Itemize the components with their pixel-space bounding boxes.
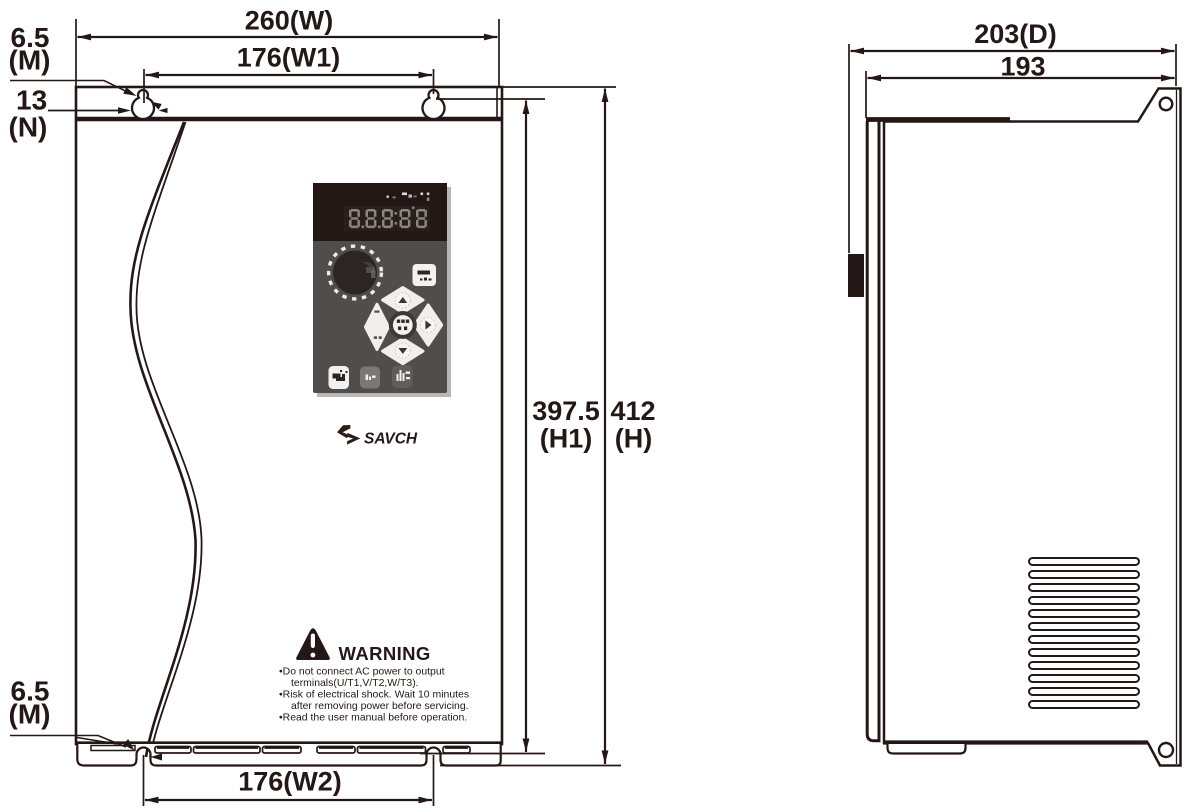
svg-text:203(D): 203(D)	[974, 19, 1057, 49]
svg-text:(H1): (H1)	[540, 424, 593, 454]
svg-text:•Risk of electrical shock. Wai: •Risk of electrical shock. Wait 10 minut…	[279, 690, 469, 701]
svg-text:176(W1): 176(W1)	[237, 43, 341, 73]
svg-text:193: 193	[1000, 52, 1045, 82]
svg-text:after removing power before se: after removing power before servicing.	[291, 701, 469, 712]
svg-text:(N): (N)	[9, 112, 48, 143]
svg-text:•Read the user manual before o: •Read the user manual before operation.	[279, 713, 467, 724]
svg-text:(M): (M)	[9, 699, 51, 730]
svg-text:terminals(U/T1,V/T2,W/T3).: terminals(U/T1,V/T2,W/T3).	[291, 678, 419, 689]
svg-text:(H): (H)	[615, 424, 652, 454]
svg-text:397.5: 397.5	[532, 396, 600, 426]
svg-text:•Do not connect AC power to ou: •Do not connect AC power to output	[279, 667, 445, 678]
svg-text:176(W2): 176(W2)	[238, 767, 342, 797]
svg-text:412: 412	[610, 396, 655, 426]
svg-text:SAVCH: SAVCH	[364, 431, 418, 448]
svg-text:(M): (M)	[9, 45, 51, 76]
svg-text:WARNING: WARNING	[339, 643, 431, 664]
svg-text:260(W): 260(W)	[245, 6, 334, 36]
